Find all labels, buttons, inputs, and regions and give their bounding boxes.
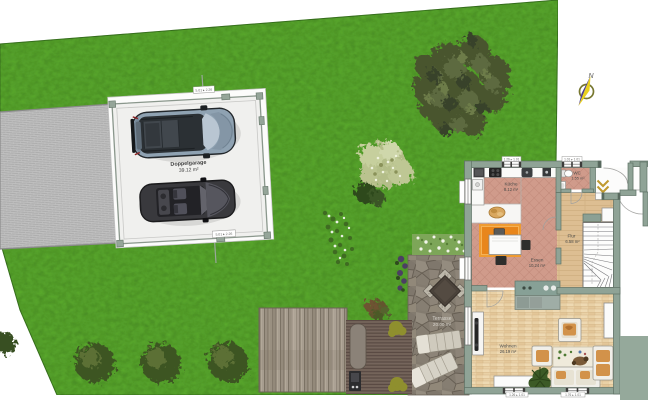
svg-text:1.55 m²: 1.55 m² — [571, 176, 585, 181]
svg-text:1.26 ▸ 1.01: 1.26 ▸ 1.01 — [509, 393, 525, 397]
svg-text:8.12 m²: 8.12 m² — [504, 187, 519, 192]
svg-text:Wohnen: Wohnen — [499, 344, 516, 349]
svg-text:10.24 m²: 10.24 m² — [529, 263, 546, 268]
svg-text:Flur: Flur — [568, 234, 576, 239]
svg-text:39.12 m²: 39.12 m² — [179, 167, 199, 174]
svg-text:26.19 m²: 26.19 m² — [500, 349, 517, 354]
svg-text:Essen: Essen — [531, 258, 544, 263]
svg-text:1.76 ▸ 1.01: 1.76 ▸ 1.01 — [565, 393, 581, 397]
svg-text:1.01 ▸ 1.01: 1.01 ▸ 1.01 — [564, 157, 580, 161]
svg-text:20.00 m²: 20.00 m² — [433, 322, 452, 327]
svg-text:6.58 m²: 6.58 m² — [565, 239, 580, 244]
svg-text:Küche: Küche — [504, 182, 517, 187]
svg-text:1.26 ▸ 1.01: 1.26 ▸ 1.01 — [504, 157, 520, 161]
